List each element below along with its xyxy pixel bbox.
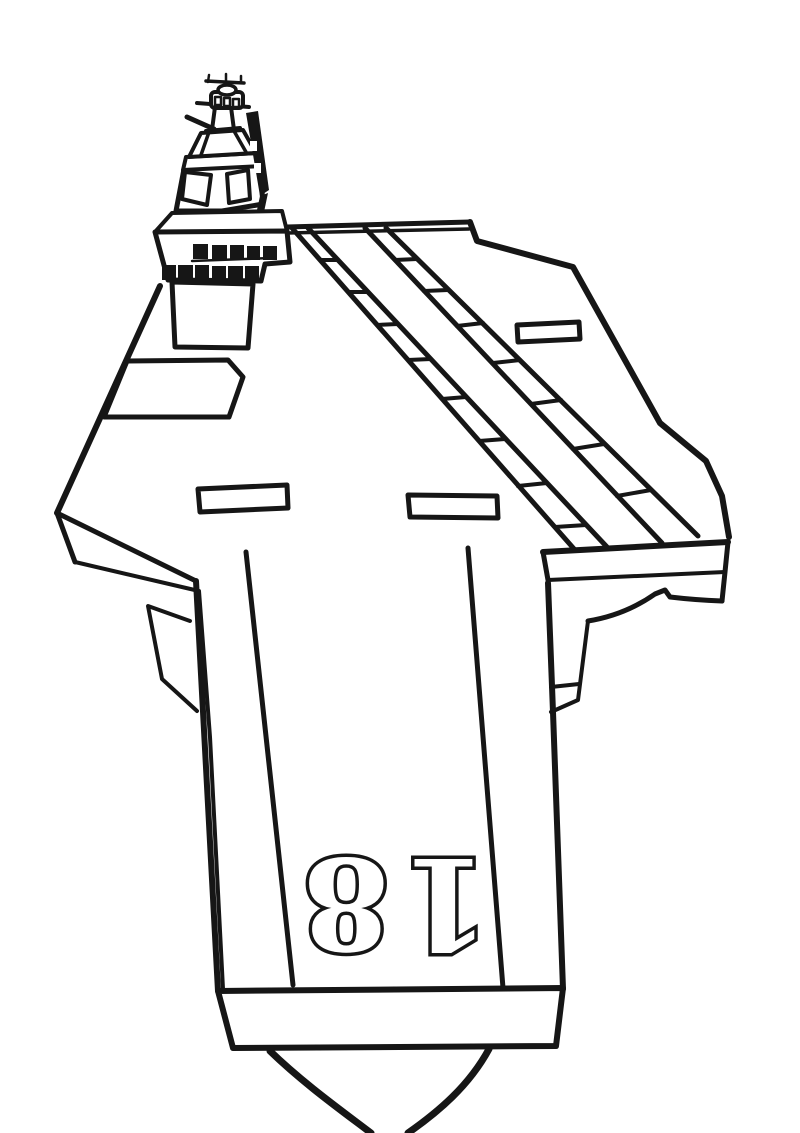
stripe-rung [442, 397, 466, 399]
wake-line-right [408, 1049, 489, 1133]
stern-transom [218, 988, 563, 1048]
island-window [228, 266, 243, 280]
radar-dome [218, 85, 236, 95]
island-window [193, 244, 208, 259]
island-window [162, 265, 176, 280]
port-edge-step [148, 606, 197, 711]
island-window [230, 245, 244, 260]
angled-deck-end-left-face [543, 552, 548, 580]
island-window [245, 266, 259, 280]
angled-deck-end-right-face [722, 542, 728, 601]
catapult-line-left [246, 552, 293, 985]
aircraft-carrier-line-art: 18 [0, 0, 800, 1133]
deck-top-edge [287, 222, 470, 227]
deck-right-edge [548, 583, 563, 989]
island-window [212, 245, 227, 260]
stripe-rung [479, 439, 505, 441]
lattice-gap [250, 141, 257, 151]
stripe-rung [395, 259, 417, 260]
elevator-marking-center [408, 495, 498, 518]
elevator-marking-left [198, 485, 288, 512]
island-window [263, 246, 277, 260]
lattice-gap [254, 163, 261, 173]
coloring-page: 18 [0, 0, 800, 1133]
sponson-curve [588, 590, 722, 621]
bow-deck-panel [104, 360, 243, 417]
hull-number: 18 [290, 829, 489, 977]
stripe-rung [377, 324, 398, 325]
stripe-rung [408, 359, 431, 360]
mast-pole [231, 107, 234, 130]
mast-strut [187, 117, 214, 129]
island-windows-top-row [193, 244, 277, 260]
sponson-support [551, 621, 588, 712]
island [155, 74, 290, 348]
island-window [195, 265, 209, 280]
stripe-rung [617, 490, 651, 496]
stripe-rung [573, 444, 604, 449]
stripe-rung [424, 290, 448, 291]
deck-left-edge [196, 581, 218, 991]
island-support-block [172, 282, 253, 348]
island-window [178, 265, 193, 280]
stripe-rung [531, 400, 561, 404]
angled-deck-end-inner [548, 572, 725, 580]
elevator-marking-upper-right [517, 322, 580, 342]
radar-antenna-tick [208, 75, 209, 82]
sponson-support-rung [551, 684, 579, 687]
port-edge-band-outer [57, 513, 196, 581]
island-window [247, 246, 260, 260]
island-window [212, 266, 226, 280]
stripe-rung [493, 360, 520, 363]
wake-line-left [270, 1051, 371, 1133]
stripe-rung [555, 525, 586, 527]
stripe-rung [457, 323, 483, 326]
stripe-rung [518, 483, 547, 486]
